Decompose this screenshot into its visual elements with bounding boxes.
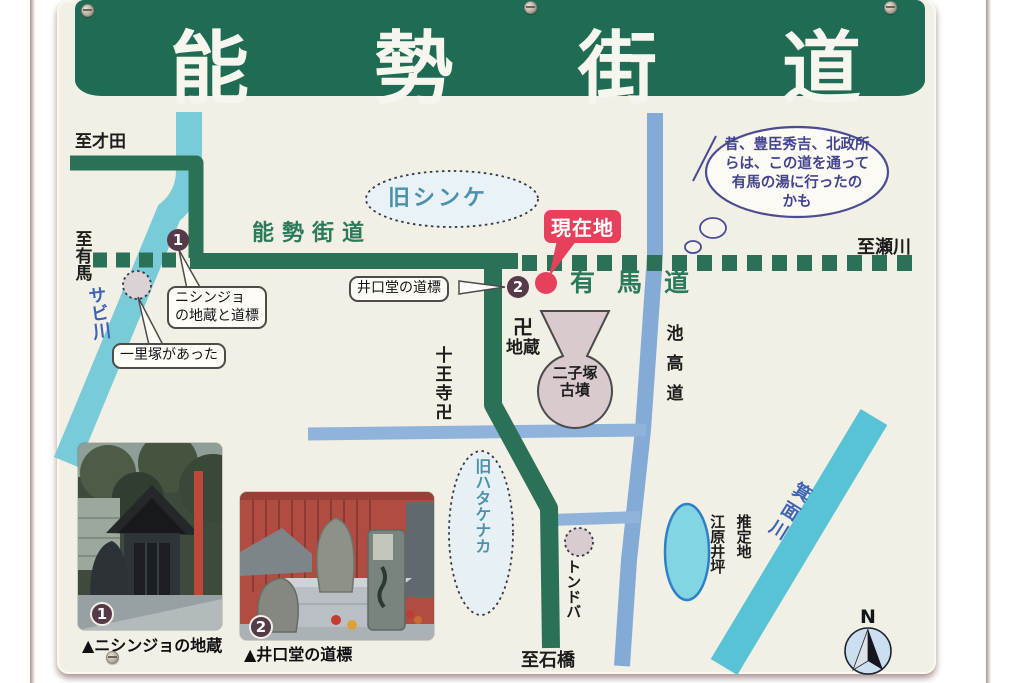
map-badge-1: 1 [167, 229, 189, 251]
ebara-itsubo-label: 江原井坪 [708, 514, 725, 574]
arima-michi-road-label: 有馬道 [570, 269, 711, 298]
area-kyu-hatakenaka: 旧ハタケナカ [472, 458, 490, 554]
cross-road-upper [308, 430, 646, 434]
tondoba-site-dot [565, 528, 593, 556]
current-location-label: 現在地 [544, 210, 621, 243]
ikekodo-road-label: 池高道 [662, 324, 682, 414]
callout-nishinjo: ニシンジョ の地蔵と道標 [167, 286, 267, 329]
current-location-dot [535, 272, 557, 294]
callout-nishinjo-line1: ニシンジョ [175, 290, 259, 308]
cross-road-lower [550, 517, 640, 520]
destination-ishibashi: 至石橋 [521, 651, 575, 672]
callout-nishinjo-line2: の地蔵と道標 [175, 308, 259, 326]
photo-caption-1: ▲ニシンジョの地蔵 [82, 632, 222, 656]
callout-ichirizuka: 一里塚があった [112, 343, 226, 369]
suiteichi-label: 推定地 [734, 514, 751, 559]
screw-icon [884, 1, 897, 14]
destination-arima: 至有馬 [71, 230, 91, 281]
ikekodo-road-shape [622, 113, 655, 666]
photo-badge-2: 2 [249, 615, 273, 639]
photo-of-map-sign: 能勢街道 [0, 0, 1024, 683]
futagozuka-label-line1: 二子塚 [538, 365, 612, 382]
bubble-note: 昔、豊臣秀吉、北政所 らは、この道を通って 有馬の湯に行ったの かも [702, 136, 892, 212]
juoji-temple-label: 十王寺卍 [431, 346, 451, 422]
bubble-line: 昔、豊臣秀吉、北政所 [702, 136, 892, 155]
compass-rose [845, 628, 891, 674]
photo-badge-1: 1 [90, 602, 114, 626]
screw-icon [106, 651, 119, 664]
jizo-label: 地蔵 [500, 339, 546, 359]
screw-icon [524, 1, 537, 14]
futagozuka-label-line2: 古墳 [538, 382, 612, 399]
destination-saida: 至才田 [75, 133, 126, 153]
callout-iguchido: 井口堂の道標 [349, 276, 449, 302]
manji-temple-icon: 卍 [500, 316, 546, 339]
area-kyu-shinke: 旧シンケ [388, 186, 488, 211]
photo-caption-2: ▲井口堂の道標 [244, 641, 352, 665]
area-tondoba: トンドバ [564, 559, 581, 619]
ichirizuka-site-dot [123, 271, 151, 299]
bubble-line: かも [702, 193, 892, 212]
pointer-ichirizuka [138, 297, 163, 345]
bubble-line: らは、この道を通って [702, 155, 892, 174]
speech-bubble-loop [700, 218, 726, 238]
ebara-itsubo-ellipse [665, 504, 709, 600]
bubble-line: 有馬の湯に行ったの [702, 174, 892, 193]
screw-icon [81, 4, 94, 17]
speech-bubble-loop [685, 241, 701, 253]
destination-segawa: 至瀬川 [857, 238, 911, 259]
compass-north-label: N [860, 606, 876, 628]
nose-kaido-road-label: 能勢街道 [252, 221, 372, 246]
map-badge-2: 2 [507, 276, 529, 298]
